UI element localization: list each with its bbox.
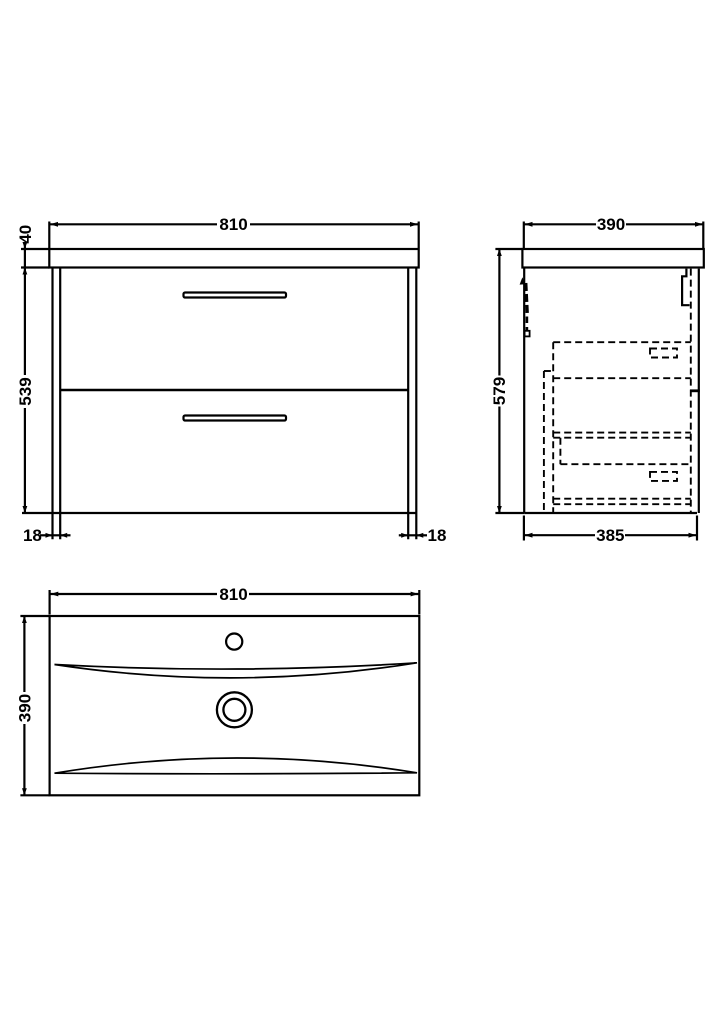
svg-text:579: 579 [490,377,509,405]
svg-text:810: 810 [219,215,247,234]
svg-text:18: 18 [428,526,447,545]
svg-text:810: 810 [219,585,247,604]
svg-text:18: 18 [23,526,42,545]
svg-text:390: 390 [597,215,625,234]
svg-text:40: 40 [16,225,35,244]
svg-text:390: 390 [15,694,34,722]
svg-text:539: 539 [16,377,35,405]
svg-text:385: 385 [596,526,624,545]
